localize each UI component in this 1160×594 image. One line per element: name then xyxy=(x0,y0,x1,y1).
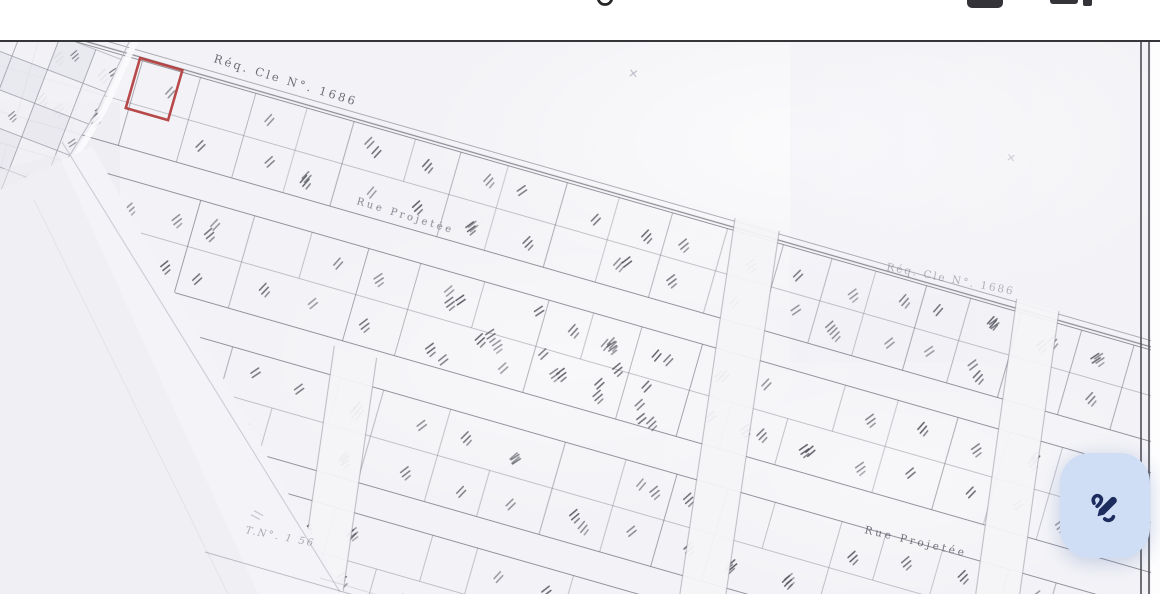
cadastral-map-scan[interactable]: Réq. Cle N°. 1686 Réq. Cle N°. 1686 Rue … xyxy=(0,42,1160,594)
partial-toolbar-icon-left[interactable] xyxy=(967,0,1003,8)
app-screen: Réq. Cle N°. 1686 Réq. Cle N°. 1686 Rue … xyxy=(0,0,1160,594)
partial-toolbar-icon-right-dot[interactable] xyxy=(1083,0,1092,6)
signature-pen-button[interactable] xyxy=(1060,453,1150,558)
partial-letter-g xyxy=(598,0,612,5)
document-viewer[interactable]: Réq. Cle N°. 1686 Réq. Cle N°. 1686 Rue … xyxy=(0,42,1160,594)
top-app-bar xyxy=(0,0,1160,42)
partial-toolbar-icon-right[interactable] xyxy=(1050,0,1078,4)
